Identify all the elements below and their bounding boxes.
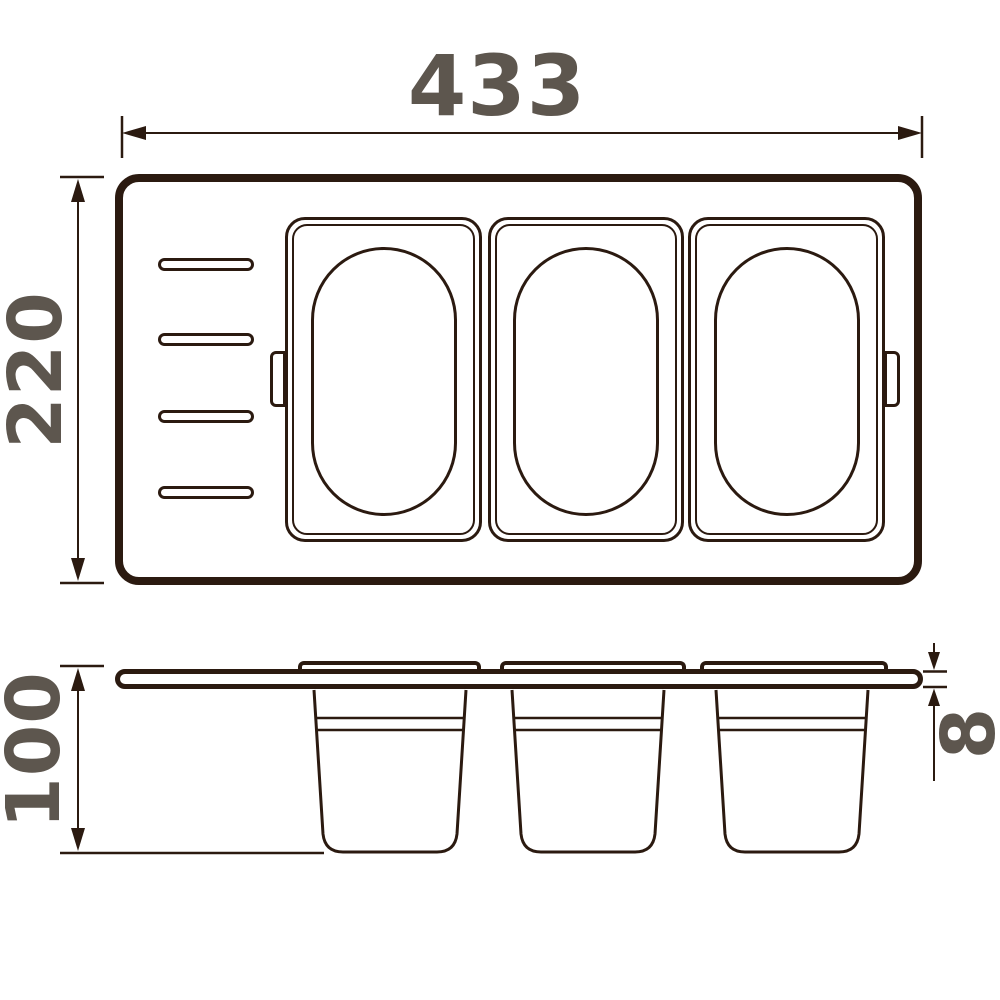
technical-drawing: 433 220 100 8 [0,0,1000,1000]
cup-2 [512,690,664,852]
dim-thickness-arrow-down [928,652,940,670]
dim-height-extension-lines [60,666,324,853]
dim-panel-thickness-label: 8 [932,707,1000,760]
dim-thickness-extension-lines [923,672,947,688]
dim-thickness-arrow-up [928,689,940,707]
dimension-linework [0,0,1000,1000]
cup-1 [314,690,466,852]
dim-width-arrow-left [122,126,146,140]
dim-width-arrow-right [898,126,922,140]
cup-3 [716,690,868,852]
dim-height-arrow-bottom [71,828,85,851]
dim-width-label: 433 [408,44,586,128]
dim-cup-height-label: 100 [0,671,71,828]
dim-depth-label: 220 [0,291,73,448]
dim-depth-arrow-bottom [71,558,85,581]
dim-depth-arrow-top [71,179,85,202]
